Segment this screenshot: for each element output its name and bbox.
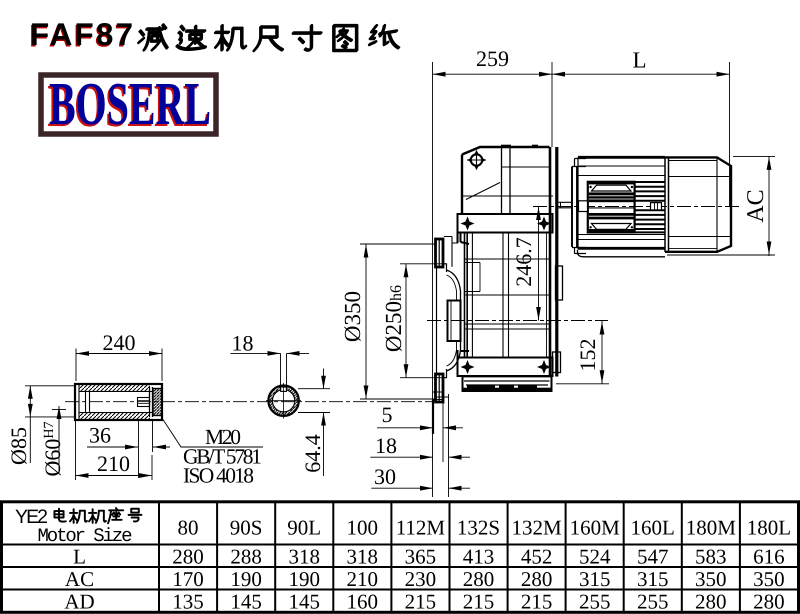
svg-text:Ø350: Ø350 <box>340 291 365 342</box>
svg-text:FAF87: FAF87 <box>30 16 133 52</box>
svg-text:315: 315 <box>579 567 611 591</box>
svg-text:100: 100 <box>347 516 379 540</box>
svg-text:259: 259 <box>476 46 509 71</box>
svg-text:215: 215 <box>405 590 437 614</box>
svg-text:365: 365 <box>405 545 437 569</box>
svg-text:18: 18 <box>375 433 397 458</box>
svg-text:280: 280 <box>695 590 727 614</box>
svg-text:160L: 160L <box>631 516 675 540</box>
svg-text:30: 30 <box>374 464 396 489</box>
svg-text:145: 145 <box>230 590 262 614</box>
svg-text:246.7: 246.7 <box>511 237 536 287</box>
svg-text:160M: 160M <box>570 516 621 540</box>
svg-text:160: 160 <box>347 590 379 614</box>
svg-text:135: 135 <box>172 590 204 614</box>
svg-text:547: 547 <box>637 545 669 569</box>
svg-text:255: 255 <box>637 590 669 614</box>
svg-text:318: 318 <box>288 545 320 569</box>
svg-text:215: 215 <box>463 590 495 614</box>
svg-text:280: 280 <box>521 567 553 591</box>
svg-text:452: 452 <box>521 545 553 569</box>
svg-text:112M: 112M <box>396 516 446 540</box>
svg-text:132M: 132M <box>512 516 563 540</box>
svg-text:L: L <box>73 545 86 569</box>
svg-text:90S: 90S <box>230 516 263 540</box>
svg-text:AD: AD <box>64 590 94 614</box>
svg-text:413: 413 <box>463 545 495 569</box>
svg-text:ISO 4018: ISO 4018 <box>183 464 254 488</box>
svg-text:170: 170 <box>172 567 204 591</box>
svg-text:145: 145 <box>288 590 320 614</box>
svg-text:255: 255 <box>579 590 611 614</box>
svg-text:Ø85: Ø85 <box>6 427 31 465</box>
svg-text:280: 280 <box>753 590 785 614</box>
svg-text:230: 230 <box>405 567 437 591</box>
svg-text:190: 190 <box>230 567 262 591</box>
svg-text:350: 350 <box>753 567 785 591</box>
svg-text:350: 350 <box>695 567 727 591</box>
svg-text:AC: AC <box>65 567 94 591</box>
svg-text:280: 280 <box>172 545 204 569</box>
svg-text:80: 80 <box>178 516 199 540</box>
svg-text:240: 240 <box>103 330 136 355</box>
svg-text:64.4: 64.4 <box>300 434 325 473</box>
svg-text:315: 315 <box>637 567 669 591</box>
svg-text:288: 288 <box>230 545 262 569</box>
svg-text:210: 210 <box>347 567 379 591</box>
svg-text:180M: 180M <box>686 516 737 540</box>
svg-text:180L: 180L <box>747 516 791 540</box>
svg-text:90L: 90L <box>287 516 321 540</box>
svg-text:190: 190 <box>288 567 320 591</box>
svg-text:616: 616 <box>753 545 785 569</box>
svg-text:210: 210 <box>97 451 130 476</box>
svg-text:BOSERL: BOSERL <box>49 71 211 138</box>
svg-text:L: L <box>632 48 646 73</box>
svg-text:215: 215 <box>521 590 553 614</box>
svg-text:36: 36 <box>89 423 111 448</box>
svg-text:318: 318 <box>347 545 379 569</box>
svg-text:AC: AC <box>743 189 769 222</box>
svg-text:5: 5 <box>382 402 393 427</box>
svg-text:132S: 132S <box>457 516 500 540</box>
svg-text:583: 583 <box>695 545 727 569</box>
svg-text:524: 524 <box>579 545 611 569</box>
svg-text:152: 152 <box>575 339 600 372</box>
svg-text:280: 280 <box>463 567 495 591</box>
svg-text:18: 18 <box>232 331 254 356</box>
